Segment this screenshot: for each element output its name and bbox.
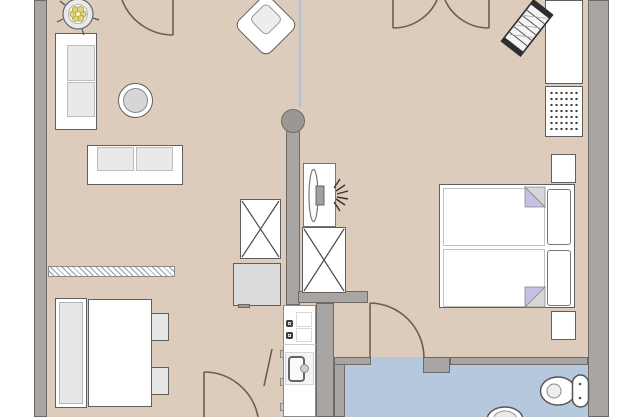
bench-pad <box>59 302 83 404</box>
counter-divider <box>283 344 316 345</box>
hatched-sideboard <box>48 266 175 277</box>
margin-left <box>0 0 34 417</box>
fridge-handle <box>238 304 250 308</box>
margin-right <box>609 0 640 417</box>
dining-table <box>88 299 152 407</box>
wall-kitchen-vertical <box>316 303 334 417</box>
cooktop-burner-1 <box>286 320 293 327</box>
mattress-2 <box>443 249 545 307</box>
wall-bathroom-top-right <box>450 357 588 365</box>
wall-right <box>588 0 609 417</box>
armchair-seat <box>249 2 283 36</box>
wall-bathroom-jog <box>423 357 450 373</box>
counter-handle-1 <box>280 350 284 358</box>
round-column <box>281 109 305 133</box>
sofa-center-cushion-right <box>136 147 173 171</box>
nightstand-top <box>551 154 576 183</box>
wall-left <box>34 0 47 417</box>
kitchen-sink-bowl-1 <box>296 312 312 327</box>
wall-center-vertical <box>286 118 300 305</box>
counter-handle-2 <box>280 378 284 386</box>
counter-handle-3 <box>280 403 284 411</box>
floor-bathroom <box>345 357 588 417</box>
sofa-left-cushion-bottom <box>67 82 95 117</box>
sofa-center-cushion-left <box>97 147 134 171</box>
pillow-2 <box>547 250 571 306</box>
dotted-dresser-pattern <box>549 90 579 133</box>
wardrobe <box>545 0 583 84</box>
kitchen-sink-bowl-2 <box>296 328 312 342</box>
chair-2 <box>151 367 169 395</box>
sofa-left-cushion-top <box>67 45 95 81</box>
tall-cabinet-left <box>240 199 281 259</box>
mattress-1 <box>443 188 545 246</box>
pillow-1 <box>547 189 571 245</box>
tv-unit <box>303 163 336 227</box>
cooktop-burner-2 <box>286 332 293 339</box>
oven-knob <box>300 364 309 373</box>
wall-bathroom-left <box>334 357 345 417</box>
fridge <box>233 263 281 306</box>
tall-cabinet-right <box>302 227 346 293</box>
round-coffee-table-top <box>123 88 148 113</box>
nightstand-bottom <box>551 311 576 340</box>
floor-plan <box>0 0 640 417</box>
wall-bathroom-top-left <box>334 357 371 365</box>
chair-1 <box>151 313 169 341</box>
